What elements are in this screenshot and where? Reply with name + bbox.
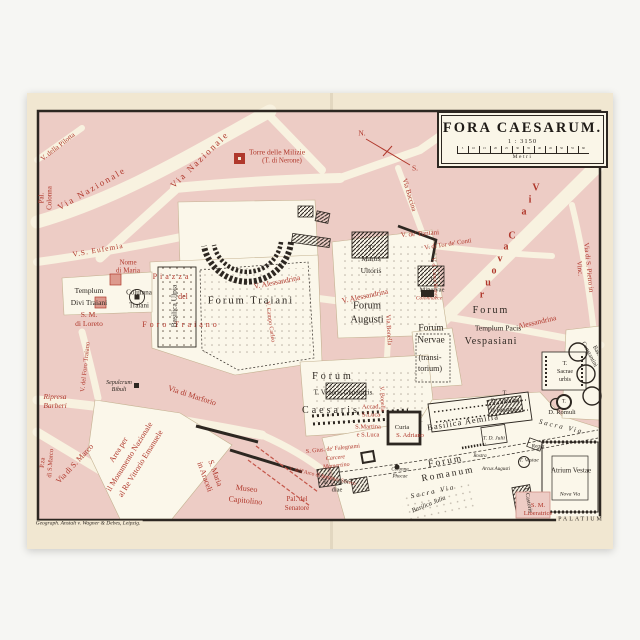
scale-tick: 55 bbox=[567, 146, 578, 153]
map-artwork bbox=[0, 0, 640, 640]
scale-tick: 35 bbox=[523, 146, 534, 153]
scale-unit: Metri bbox=[513, 154, 533, 160]
map-title: FORA CAESARUM. bbox=[443, 120, 602, 137]
map-title-box: FORA CAESARUM. 1 : 3150 5101520253035404… bbox=[437, 111, 608, 168]
scale-tick: 45 bbox=[545, 146, 556, 153]
scale-tick: 40 bbox=[534, 146, 545, 153]
scale-tick: 5 bbox=[457, 146, 468, 153]
scale-tick: 20 bbox=[490, 146, 501, 153]
photo-background: FORA CAESARUM. 1 : 3150 5101520253035404… bbox=[0, 0, 640, 640]
scale-tick: 15 bbox=[479, 146, 490, 153]
map-scale-ratio: 1 : 3150 bbox=[508, 138, 537, 145]
scale-tick: 30 bbox=[512, 146, 523, 153]
scale-tick: 10 bbox=[468, 146, 479, 153]
scale-tick: 50 bbox=[556, 146, 567, 153]
scale-tick: 25 bbox=[501, 146, 512, 153]
scale-tick: 60 bbox=[578, 146, 589, 153]
scale-bar: 51015202530354045505560 bbox=[457, 146, 589, 154]
